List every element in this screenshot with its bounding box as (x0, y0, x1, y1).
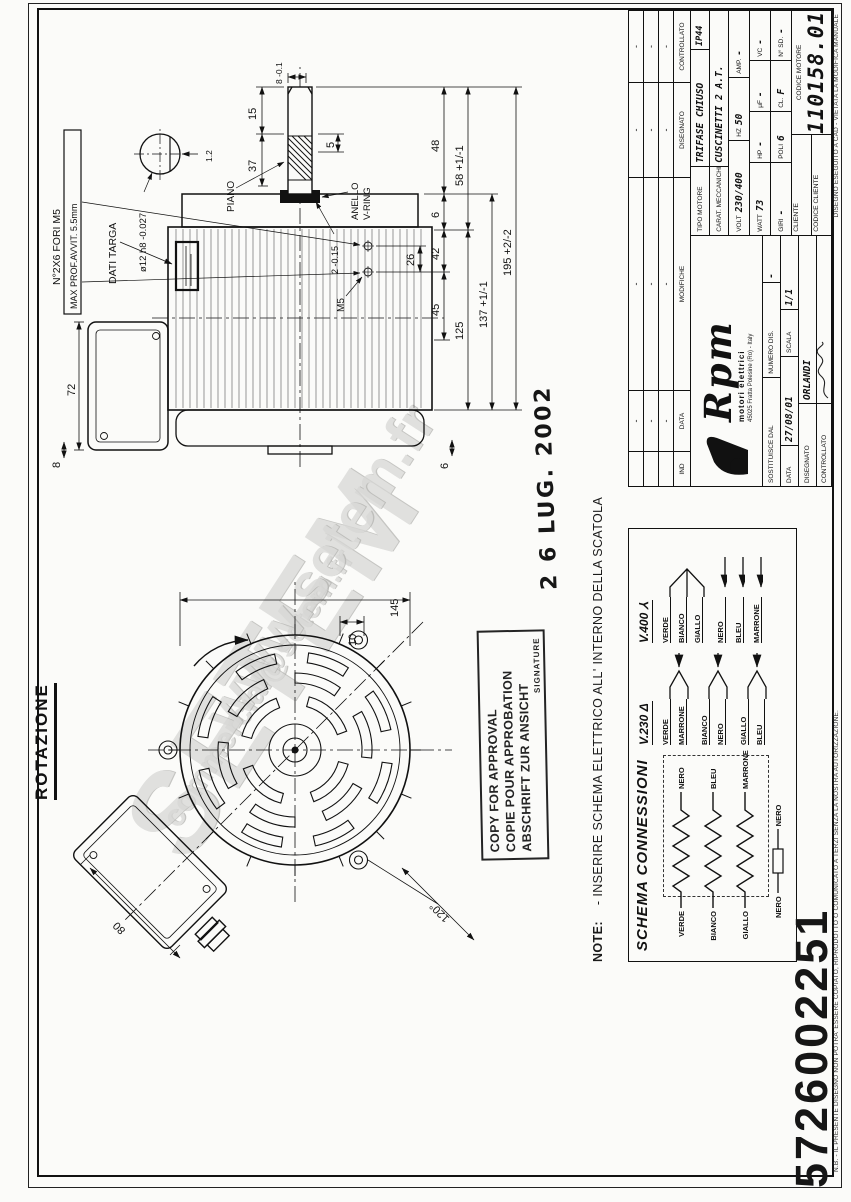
dim-37: 37 (247, 160, 259, 172)
dim-48: 48 (430, 140, 442, 152)
label-anello: ANELLO (350, 183, 361, 221)
dim-o12: ø12 h8 -0.027 (138, 213, 149, 272)
rev-controllato: - (659, 11, 673, 82)
sostituisce-label: SOSTITUISCE DAL (768, 425, 775, 483)
title-block: - - - - - - - - - - - - IND DATA MODIFIC… (628, 10, 832, 487)
data-scala-row: DATA 27/08/01 SCALA 1/1 (781, 236, 799, 486)
carat-value: CUSCINETTI 2 A.T. (714, 66, 725, 163)
disegnato-label: DISEGNATO (804, 445, 811, 483)
data-value: 27/08/01 (784, 396, 795, 442)
dim-6a: 6 (430, 212, 442, 218)
volt-value: 230/400 (734, 172, 745, 212)
star-group: VERDE BIANCO GIALLO (655, 555, 707, 643)
terminal-box-lid (96, 330, 160, 442)
wire-label: MARRONE (741, 745, 750, 792)
star-junction (655, 555, 707, 597)
cooling-fins (176, 229, 421, 408)
schema-connessioni-box: SCHEMA CONNESSIONI VERDE NERO BIANCO BLE… (628, 528, 797, 962)
disegnato-row: DISEGNATO ORLANDI (799, 236, 817, 486)
volt-label: VOLT (736, 215, 743, 232)
wire-label: GIALLO (741, 908, 750, 955)
logo-address: 45025 Fratta Polesine (Ro) - Italy (748, 320, 754, 422)
dim-8-01: 8 -0.1 (274, 62, 284, 84)
dim-45: 45 (430, 304, 442, 316)
poli-value: 6 (776, 135, 787, 141)
wire-arrow (728, 555, 745, 597)
giri-row: GIRI- POLI6 CL.F N° SD.- (771, 11, 792, 235)
nsd-label: N° SD. (778, 37, 785, 57)
label-m5: M5 (336, 298, 347, 312)
front-dimension-texts: 80 120° 145 10 (111, 599, 452, 937)
wire-label: BLEU (709, 745, 718, 792)
rev-ind (629, 451, 643, 486)
winding-zigzag (733, 792, 757, 908)
rev-head-controllato: CONTROLLATO (674, 11, 690, 82)
supply-wire: MARRONE (746, 555, 763, 643)
logo-zone: Rpm motori elettrici 45025 Fratta Polesi… (691, 236, 763, 486)
winding-zigzag (701, 792, 725, 908)
rpm-logo-mark (704, 430, 750, 480)
lid-screw (153, 333, 160, 340)
dim-137: 137 +1/-1 (478, 281, 490, 328)
wire-label: VERDE (655, 699, 671, 745)
codice-motore-label: CODICE MOTORE (796, 45, 803, 101)
data-label: DATA (786, 467, 793, 483)
rev-head-ind: IND (674, 451, 690, 486)
numero-dis-label: NUMERO DIS. (768, 330, 775, 373)
wire-label: BIANCO (671, 597, 687, 643)
front-view (71, 582, 452, 975)
schema-title: SCHEMA CONNESSIONI (634, 759, 651, 951)
dim-10: 10 (347, 634, 359, 646)
rev-data: - (629, 390, 643, 451)
wire-pair: VERDE MARRONE (655, 651, 691, 745)
rev-modifiche: - (659, 177, 673, 390)
terminal-box (88, 322, 168, 450)
wire-pair: BIANCO NERO (694, 651, 730, 745)
scala-label: SCALA (786, 332, 793, 353)
rev-disegnato: - (644, 82, 658, 177)
note-text: - INSERIRE SCHEMA ELETTRICO ALL' INTERNO… (591, 497, 605, 905)
scanned-drawing-page: commercial@setem.fr SETEM www.setem.fr (0, 0, 851, 1202)
wire-label: BIANCO (694, 699, 710, 745)
cliente-label: CLIENTE (793, 203, 800, 232)
dim-1-2: 1.2 (204, 150, 214, 162)
thermal-protector-row: NERO NERO (771, 802, 785, 921)
uf-value: - (755, 91, 766, 97)
rev-disegnato: - (629, 82, 643, 177)
rev-data: - (659, 390, 673, 451)
dim-6b: 6 (439, 463, 451, 469)
poli-label: POLI (778, 144, 785, 159)
tipo-value: TRIFASE CHIUSO (695, 83, 706, 163)
winding-row: GIALLO MARRONE (729, 745, 761, 955)
codice-cliente-label: CODICE CLIENTE (813, 175, 820, 232)
label-vring: V-RING (362, 187, 373, 220)
dim-72: 72 (66, 384, 78, 396)
hp-value: - (755, 141, 766, 147)
winding-row: BIANCO BLEU (697, 745, 729, 955)
wire-label: GIALLO (687, 597, 703, 643)
watt-value: 73 (755, 200, 766, 211)
serial-number-stamp: 5726002251 (786, 908, 838, 1188)
side-view (82, 67, 444, 467)
giri-value: - (776, 210, 787, 216)
dim-26: 26 (405, 254, 417, 266)
dim-5: 5 (325, 142, 337, 148)
side-dimension-texts: 72 8 6 N°2X6 FORI M5 MAX PROF.AVVIT. 5.5… (51, 62, 514, 469)
ip-rating: IP44 (695, 26, 705, 46)
supply-wire: BLEU (728, 555, 745, 643)
signature-squiggle (817, 340, 831, 400)
rev-controllato: - (644, 11, 658, 82)
revision-header: IND DATA MODIFICHE DISEGNATO CONTROLLATO (674, 11, 691, 486)
wire-label: BLEU (749, 699, 765, 745)
pair-junction-arrow (733, 651, 769, 699)
cable-gland (193, 915, 232, 954)
v230-label: V.230 Δ (637, 701, 653, 745)
disegnato-value: ORLANDI (802, 360, 813, 400)
scala-value: 1/1 (784, 289, 795, 306)
watt-row: WATT73 HP- μF- VC- (750, 11, 771, 235)
controllato-label: CONTROLLATO (821, 435, 828, 483)
tipo-label: TIPO MOTORE (697, 186, 704, 231)
dim-42: 42 (430, 248, 442, 260)
carat-row: CARAT. MECCANICHE CUSCINETTI 2 A.T. (710, 11, 729, 235)
fori-leader (82, 273, 360, 282)
wire-pair: GIALLO BLEU (733, 651, 769, 745)
uf-label: μF (757, 100, 764, 108)
carat-label: CARAT. MECCANICHE (716, 166, 723, 232)
amp-value: - (734, 50, 745, 56)
tipo-motore-row: TIPO MOTORE TRIFASE CHIUSO IP44 (691, 11, 710, 235)
pair-junction-arrow (694, 651, 730, 699)
wire-label: VERDE (655, 597, 671, 643)
v400-star-diagram: V.400 ⅄ VERDE BIANCO GIALLO NERO BLEU (635, 555, 764, 643)
rev-ind (659, 451, 673, 486)
dim-145: 145 (389, 599, 401, 617)
wire-label: MARRONE (671, 699, 687, 745)
note-label: NOTE: (591, 921, 605, 962)
wire-label: NERO (677, 745, 686, 792)
cl-value: F (776, 89, 787, 95)
wire-arrow (710, 555, 727, 597)
drawing-sheet-landscape: commercial@setem.fr SETEM www.setem.fr (0, 0, 851, 1202)
rev-ind (644, 451, 658, 486)
giri-label: GIRI (778, 218, 785, 231)
hz-label: HZ (736, 128, 743, 137)
nsd-value: - (776, 28, 787, 34)
cliente-codice-row: CLIENTE CODICE CLIENTE CODICE MOTORE 110… (792, 11, 831, 235)
v400-label: V.400 ⅄ (637, 600, 653, 643)
revision-row: - - - - (629, 11, 644, 486)
dim-125: 125 (454, 322, 466, 340)
label-fori-prof: MAX PROF.AVVIT. 5.5mm (69, 204, 79, 309)
rotazione-label: ROTAZIONE (32, 683, 57, 800)
rev-disegnato: - (659, 82, 673, 177)
revision-row: - - - - (644, 11, 659, 486)
lid-screw (101, 433, 108, 440)
supply-wire: NERO (710, 555, 727, 643)
rev-data: - (644, 390, 658, 451)
note-line: NOTE:- INSERIRE SCHEMA ELETTRICO ALL' IN… (591, 497, 605, 962)
wire-label: BIANCO (709, 908, 718, 955)
dim-120: 120° (428, 900, 453, 925)
protector-symbol (771, 829, 785, 893)
volt-row: VOLT230/400 HZ50 AMP.- (729, 11, 750, 235)
dim-80: 80 (111, 919, 128, 936)
hz-value: 50 (734, 114, 745, 125)
rpm-logo-text: Rpm (700, 320, 737, 422)
rev-head-disegnato: DISEGNATO (674, 82, 690, 177)
wire-label: VERDE (677, 908, 686, 955)
wire-label: NERO (710, 597, 726, 643)
dim-8: 8 (51, 462, 63, 468)
dim-2-015: 2 -0.15 (330, 246, 340, 274)
rev-head-data: DATA (674, 390, 690, 451)
label-piano: PIANO (226, 181, 237, 212)
label-dati-targa: DATI TARGA (107, 223, 119, 284)
pair-junction-arrow (655, 651, 691, 699)
shaft-end-view (134, 128, 186, 180)
numero-dis-value: - (766, 273, 777, 279)
label-fori: N°2X6 FORI M5 (51, 209, 63, 285)
rev-modifiche: - (629, 177, 643, 390)
dim-15: 15 (247, 108, 259, 120)
fori-leader (82, 202, 360, 245)
wire-arrow (746, 555, 763, 597)
legal-text-right: DISEGNO ESEGUITO A CAD - VIETATA LA MODI… (833, 14, 840, 218)
vc-value: - (755, 39, 766, 45)
nameplate (176, 242, 198, 290)
sostituisce-row: SOSTITUISCE DAL NUMERO DIS. - (763, 236, 781, 486)
codice-motore-value: 110158.01 (804, 11, 828, 134)
hp-label: HP (757, 150, 764, 159)
v230-delta-diagram: V.230 Δ VERDE MARRONE BIANCO NERO (635, 651, 772, 745)
vc-label: VC (757, 48, 764, 57)
approval-stamp: COPY FOR APPROVAL COPIE POUR APPROBATION… (477, 629, 550, 860)
rev-head-modifiche: MODIFICHE (674, 177, 690, 390)
wire-label: NERO (774, 893, 783, 921)
dim-195: 195 +2/-2 (502, 229, 514, 276)
cl-label: CL. (778, 98, 785, 108)
wire-label: GIALLO (733, 699, 749, 745)
revision-row: - - - - (659, 11, 674, 486)
rev-modifiche: - (644, 177, 658, 390)
rev-controllato: - (629, 11, 643, 82)
wire-label: NERO (710, 699, 726, 745)
watt-label: WATT (757, 214, 764, 232)
wire-label: MARRONE (746, 597, 762, 643)
controllato-row: CONTROLLATO (817, 236, 831, 486)
wire-label: BLEU (728, 597, 744, 643)
winding-zigzag (669, 792, 693, 908)
wire-label: NERO (774, 802, 783, 830)
amp-label: AMP. (736, 59, 743, 74)
winding-diagram: VERDE NERO BIANCO BLEU GIALLO MARRONE (665, 745, 761, 955)
winding-row: VERDE NERO (665, 745, 697, 955)
dim-58: 58 +1/-1 (454, 145, 466, 186)
